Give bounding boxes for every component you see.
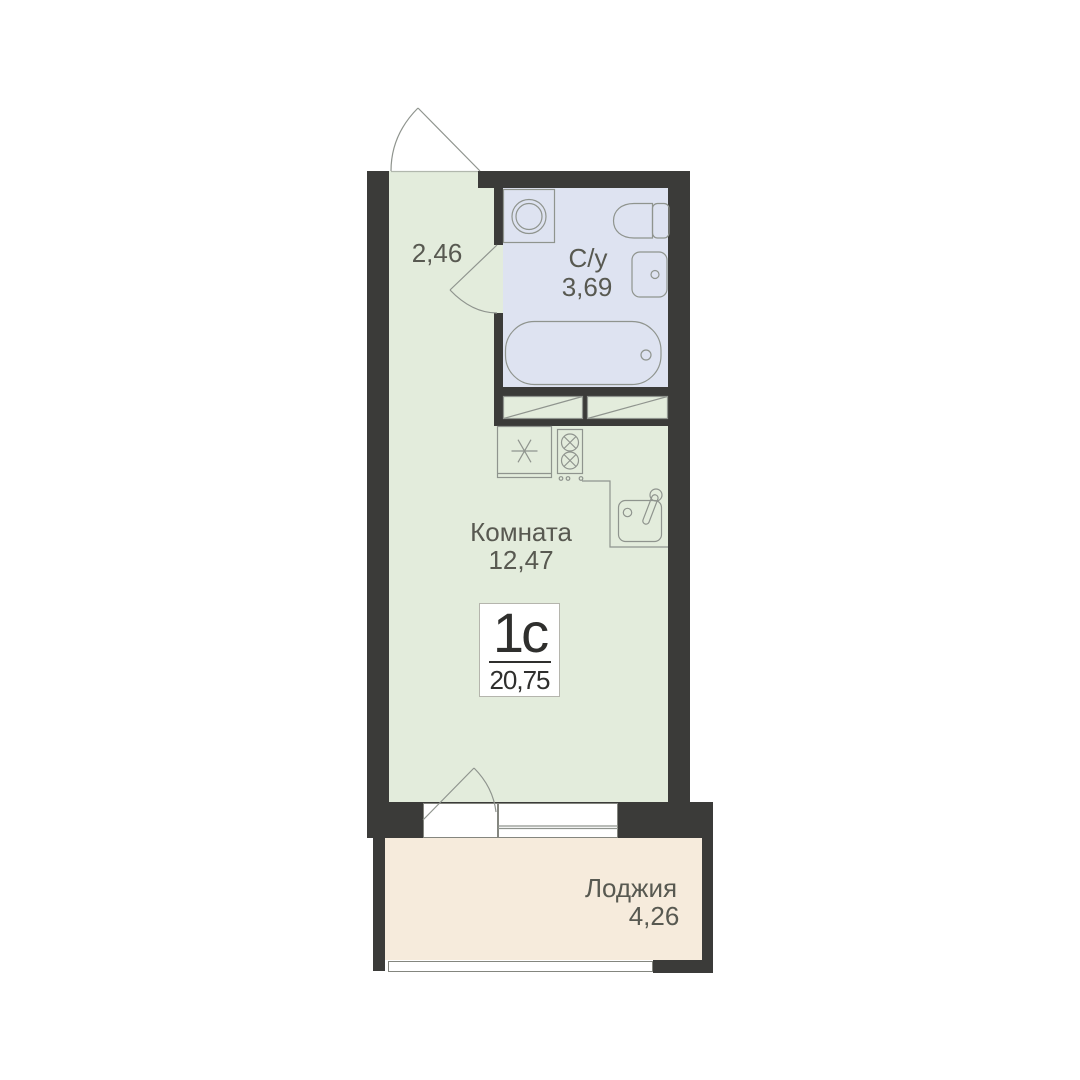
- toilet-icon: [614, 204, 670, 239]
- unit-area-label: 20,75: [489, 668, 549, 692]
- wardrobe-cabinet-2-icon: [588, 397, 668, 419]
- kitchen-sink-icon: [619, 489, 663, 542]
- wardrobe-cabinet-1-icon: [504, 397, 583, 419]
- washing-machine-icon: [504, 190, 555, 243]
- floor-plan: 2,46 С/у 3,69 Комната 12,47 Лоджия 4,26 …: [0, 0, 1080, 1080]
- loggia-area-label: 4,26: [629, 903, 680, 929]
- unit-type-plate: 1с 20,75: [479, 603, 560, 697]
- living-room-area-label: 12,47: [488, 547, 553, 573]
- kitchen-counter-line: [582, 481, 668, 547]
- bathroom-name-label: С/у: [569, 245, 608, 271]
- bathroom-area-label: 3,69: [562, 274, 613, 300]
- loggia-name-label: Лоджия: [585, 875, 677, 901]
- wall-sink-icon: [632, 252, 667, 297]
- hallway-area-label: 2,46: [412, 240, 463, 266]
- living-room-name-label: Комната: [470, 519, 572, 545]
- unit-type-label: 1с: [493, 609, 546, 657]
- fridge-icon: [498, 427, 552, 478]
- balcony-door-swing-icon: [423, 768, 496, 820]
- stove-icon: [558, 430, 583, 481]
- bathtub-icon: [506, 322, 662, 385]
- plate-divider: [489, 661, 551, 663]
- balcony-window-mullions: [498, 826, 618, 829]
- entrance-door-swing-icon: [391, 108, 480, 172]
